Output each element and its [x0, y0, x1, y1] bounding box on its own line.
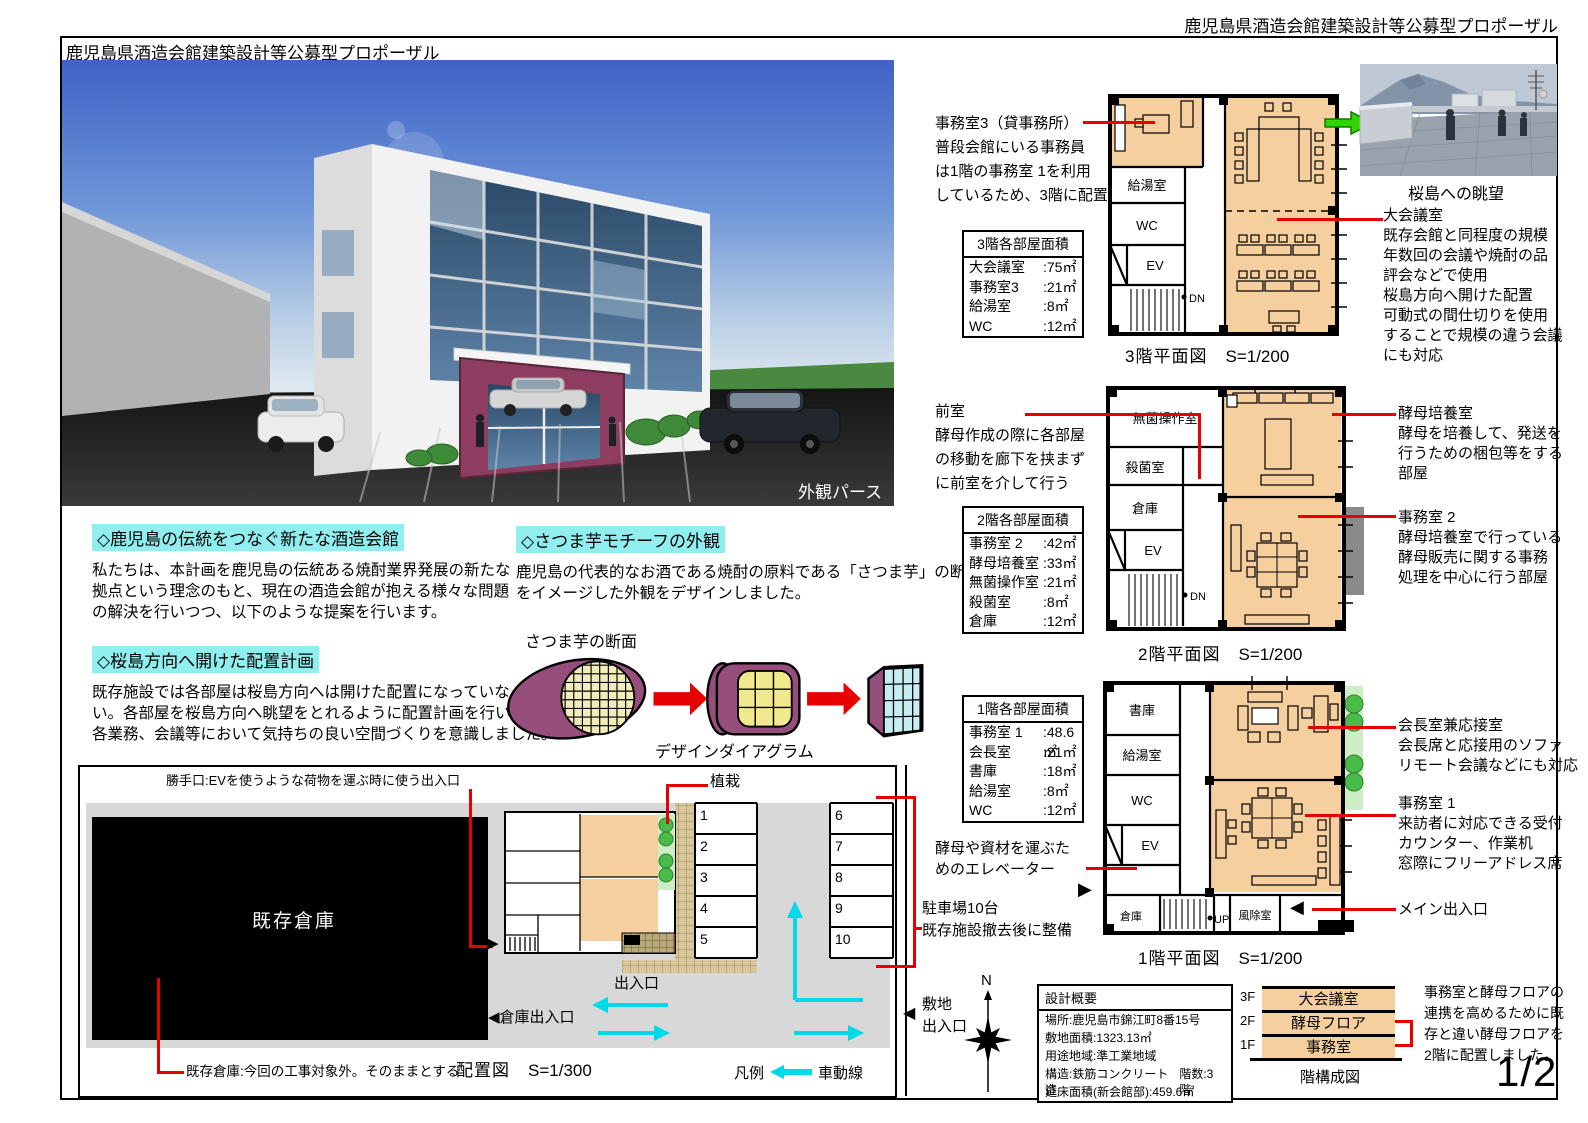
table-row: 無菌操作室:21㎡	[964, 573, 1082, 593]
room-label-kyuto: 給湯室	[1122, 748, 1161, 763]
stall-number: 6	[835, 807, 843, 823]
legend-arrow-icon	[768, 1064, 814, 1080]
table-header: 2階各部屋面積	[964, 508, 1082, 534]
leader-1f-entrance	[1312, 908, 1396, 911]
room-label-soko: 倉庫	[1120, 909, 1142, 923]
room-label-dn: DN	[1190, 591, 1206, 603]
section3-heading: ◇さつま芋モチーフの外観	[516, 526, 725, 553]
leader-stack-v	[1410, 1020, 1413, 1047]
room-label-fujo: 風除室	[1239, 908, 1272, 922]
leader-warehouse-v	[157, 978, 160, 1074]
photo-caption: 桜島への眺望	[1408, 180, 1504, 204]
floor2-area-table: 2階各部屋面積 事務室 2:42㎡ 酵母培養室:33㎡ 無菌操作室:21㎡ 殺菌…	[962, 506, 1084, 634]
north-label: N	[981, 972, 992, 989]
leader-1f-ev	[1086, 867, 1137, 870]
stall-number: 7	[835, 838, 843, 854]
table-row: 事務室 1:48.6㎡	[964, 723, 1082, 743]
leader-planting-v	[666, 784, 669, 824]
leader-warehouse-h	[157, 1071, 184, 1074]
table-row: 酵母培養室:33㎡	[964, 554, 1082, 574]
site-plan-title: 配置図S=1/300	[456, 1056, 592, 1081]
potato-abstracted	[707, 663, 799, 734]
leader-parking-tick	[914, 927, 922, 930]
section2-heading: ◇桜島方向へ開けた配置計画	[92, 646, 319, 673]
stack-caption: 階構成図	[1300, 1066, 1360, 1087]
leader-parking-v	[913, 796, 916, 968]
summary-row: 構造:鉄筋コンクリート造階数:3階	[1039, 1065, 1231, 1083]
room-label-up: UP	[1214, 914, 1229, 926]
main-entrance-note: メイン出入口	[1398, 900, 1488, 920]
kitchen-door-arrow-icon: ▶	[1078, 880, 1092, 898]
stack-label-2f: 2F	[1240, 1013, 1255, 1028]
office1-note: 事務室 1 来訪者に対応できる受付 カウンター、作業机 窓際にフリーアドレス席	[1398, 794, 1563, 874]
warehouse-entrance-label: ◀倉庫出入口	[488, 1006, 575, 1027]
floor3-title: 3階平面図S=1/200	[1125, 342, 1289, 367]
room-label-shoko: 書庫	[1129, 703, 1155, 718]
stack-bar-3f: 大会議室	[1262, 986, 1395, 1010]
table-row: 会長室:21㎡	[964, 743, 1082, 763]
diagram-caption: デザインダイアグラム	[655, 738, 814, 762]
diagram-arrow-1	[653, 682, 707, 715]
stack-ground-line	[1250, 1058, 1402, 1061]
room-label-dn: DN	[1189, 293, 1205, 305]
room-label-storage: 倉庫	[1132, 501, 1158, 516]
exterior-render	[62, 60, 894, 506]
north-compass-icon	[953, 990, 1023, 1095]
existing-warehouse-label: 既存倉庫	[252, 906, 336, 933]
leader-2f-anteroom-h	[1025, 413, 1201, 416]
table-row: 事務室 2:42㎡	[964, 534, 1082, 554]
render-caption: 外観パース	[798, 478, 882, 503]
stall-number: 2	[700, 838, 708, 854]
proposal-sheet: 鹿児島県酒造会館建築設計等公募型プロポーザル 鹿児島県酒造会館建築設計等公募型プ…	[0, 0, 1588, 1123]
planting-label: 植栽	[710, 770, 740, 791]
stack-bar-2f: 酵母フロア	[1262, 1010, 1395, 1034]
site-entrance-arrow-icon: ◀	[903, 1006, 915, 1022]
sakurajima-photo	[1360, 64, 1557, 176]
section3-body: 鹿児島の代表的なお酒である焼酎の原料である「さつま芋」の断面の をイメージした外…	[516, 562, 996, 604]
header-right-title: 鹿児島県酒造会館建築設計等公募型プロポーザル	[1060, 12, 1558, 37]
leader-2f-anteroom-v	[1198, 413, 1201, 479]
section2-body: 既存施設では各部屋は桜島方向へは開けた配置になっていな い。各部屋を桜島方向へ眺…	[92, 682, 557, 745]
stall-number: 4	[700, 900, 708, 916]
floor3-office-note: 事務室3（貸事務所） 普段会館にいる事務員 は1階の事務室 1を利用 しているた…	[935, 112, 1108, 208]
room-label-sterilize: 殺菌室	[1125, 460, 1164, 475]
culture-room-note: 酵母培養室 酵母を培養して、発送を 行うための梱包等をする 部屋	[1398, 404, 1563, 484]
stall-number: 3	[700, 869, 708, 885]
section1-body: 私たちは、本計画を鹿児島の伝統ある焼酎業界発展の新たな 拠点という理念のもと、現…	[92, 560, 511, 623]
leader-parking-bottom	[876, 965, 915, 968]
meeting-room-note: 大会議室 既存会館と同程度の規模 年数回の会議や焼酎の品 評会などで使用 桜島方…	[1383, 206, 1563, 366]
summary-row: 場所:鹿児島市錦江町8番15号	[1039, 1011, 1231, 1029]
stall-number: 1	[700, 807, 708, 823]
leader-1f-president	[1308, 726, 1396, 729]
stall-number: 5	[700, 931, 708, 947]
table-row: WC:12㎡	[964, 317, 1082, 337]
floor1-plan: 書庫 給湯室 WC EV 倉庫 UP 風除室	[1102, 680, 1367, 938]
stack-bar-1f: 事務室	[1262, 1034, 1395, 1058]
table-row: 大会議室:75㎡	[964, 258, 1082, 278]
stall-number: 8	[835, 869, 843, 885]
main-entrance-arrow-icon: ◀	[1290, 898, 1304, 916]
kitchen-door-entry-arrow-icon: ▶	[487, 936, 499, 951]
president-room-note: 会長室兼応接室 会長席と応接用のソファ リモート会議などにも対応	[1398, 716, 1578, 776]
leader-3f-meeting	[1277, 218, 1383, 221]
warehouse-note: 既存倉庫:今回の工事対象外。そのままとする	[186, 1060, 459, 1080]
section1-heading: ◇鹿児島の伝統をつなぐ新たな酒造会館	[92, 524, 404, 551]
office2-note: 事務室 2 酵母培養室で行っている 酵母販売に関する事務 処理を中心に行う部屋	[1398, 508, 1562, 588]
room-label-wc: WC	[1131, 793, 1153, 808]
table-header: 1階各部屋面積	[964, 697, 1082, 723]
design-summary-box: 設計概要 場所:鹿児島市錦江町8番15号 敷地面積:1323.13㎡ 用途地域:…	[1037, 984, 1233, 1103]
stack-label-3f: 3F	[1240, 989, 1255, 1004]
stall-number: 10	[835, 931, 851, 947]
table-row: 殺菌室:8㎡	[964, 593, 1082, 613]
table-row: 事務室3:21㎡	[964, 278, 1082, 298]
leader-kitchen-v	[469, 789, 472, 948]
table-row: 倉庫:12㎡	[964, 612, 1082, 632]
floor2-plan: 無菌操作室 殺菌室 倉庫 EV DN	[1105, 385, 1367, 632]
floor3-plan: 給湯室 WC EV DN	[1107, 93, 1340, 337]
room-label-ev: EV	[1144, 543, 1162, 558]
page-number: 1/2	[1496, 1048, 1557, 1096]
room-label-wc: WC	[1136, 218, 1158, 233]
potato-building	[869, 665, 923, 736]
floor1-area-table: 1階各部屋面積 事務室 1:48.6㎡ 会長室:21㎡ 書庫:18㎡ 給湯室:8…	[962, 695, 1084, 823]
floor1-title: 1階平面図S=1/200	[1138, 944, 1302, 969]
table-row: 給湯室:8㎡	[964, 782, 1082, 802]
diagram-arrow-2	[807, 682, 861, 715]
floor3-area-table: 3階各部屋面積 大会議室:75㎡ 事務室3:21㎡ 給湯室:8㎡ WC:12㎡	[962, 230, 1084, 338]
room-label-kyuto: 給湯室	[1127, 178, 1166, 193]
summary-row: 延床面積(新会館部):459.6㎡	[1039, 1083, 1231, 1101]
room-label-ev: EV	[1146, 258, 1164, 273]
summary-title: 設計概要	[1039, 986, 1231, 1011]
legend-item-label: 車動線	[818, 1062, 863, 1083]
table-row: 給湯室:8㎡	[964, 297, 1082, 317]
table-row: 書庫:18㎡	[964, 762, 1082, 782]
summary-row: 敷地面積:1323.13㎡	[1039, 1029, 1231, 1047]
leader-1f-office	[1305, 814, 1396, 817]
legend-label: 凡例	[734, 1062, 764, 1083]
table-row: WC:12㎡	[964, 801, 1082, 821]
design-diagram	[493, 646, 933, 742]
floor2-title: 2階平面図S=1/200	[1138, 640, 1302, 665]
potato-whole	[502, 649, 651, 749]
entrance-mat	[1318, 920, 1354, 932]
entrance-label: 出入口	[614, 972, 659, 993]
leader-3f-office	[1083, 121, 1155, 124]
elevator-note: 酵母や資材を運ぶた めのエレベーター	[935, 838, 1070, 880]
table-header: 3階各部屋面積	[964, 232, 1082, 258]
room-label-ev: EV	[1141, 838, 1159, 853]
column-divider	[905, 765, 907, 1096]
leader-stack-bottom	[1395, 1044, 1413, 1047]
stack-label-1f: 1F	[1240, 1037, 1255, 1052]
kitchen-door-note: 勝手口:EVを使うような荷物を運ぶ時に使う出入口	[166, 770, 460, 789]
parking-note: 駐車場10台 既存施設撤去後に整備	[922, 898, 1072, 942]
stall-number: 9	[835, 900, 843, 916]
leader-parking-top	[876, 796, 915, 799]
leader-2f-culture	[1332, 413, 1396, 416]
leader-planting-h	[666, 784, 708, 787]
summary-row: 用途地域:準工業地域	[1039, 1047, 1231, 1065]
leader-2f-office	[1298, 515, 1396, 518]
site-plan: 1 2 3 4 5 6 7 8 9 10	[78, 765, 897, 1098]
